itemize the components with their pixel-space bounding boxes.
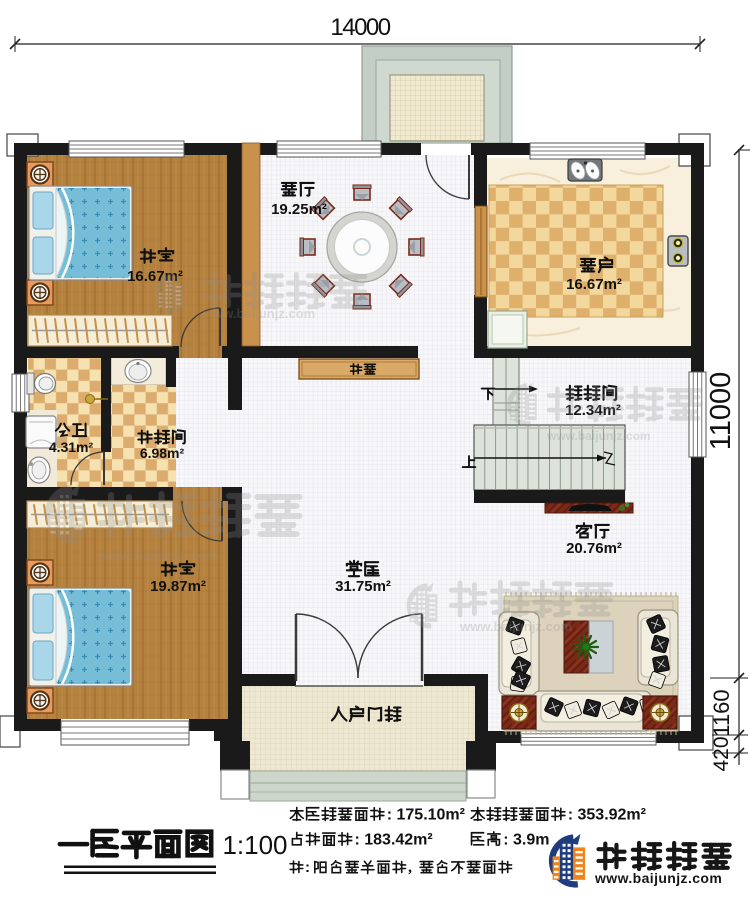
svg-text:16.67m²: 16.67m²: [127, 268, 183, 285]
svg-text:: 183.42m²: : 183.42m²: [354, 832, 432, 849]
svg-text:: 175.10m²: : 175.10m²: [387, 807, 465, 824]
svg-text:20.76m²: 20.76m²: [566, 540, 622, 557]
svg-text:www.baijunjz.com: www.baijunjz.com: [594, 870, 722, 886]
svg-text:www.baijunjz.com: www.baijunjz.com: [97, 547, 219, 563]
svg-text:: 3.9m: : 3.9m: [503, 832, 549, 849]
svg-text:19.87m²: 19.87m²: [150, 578, 206, 595]
svg-text:31.75m²: 31.75m²: [335, 578, 391, 595]
svg-text::: :: [305, 859, 310, 876]
svg-text:www.baijunjz.com: www.baijunjz.com: [546, 429, 651, 443]
svg-text:6.98m²: 6.98m²: [140, 445, 185, 461]
svg-text:14000: 14000: [330, 14, 390, 41]
svg-text:,: ,: [408, 859, 412, 876]
svg-text:420: 420: [710, 736, 733, 771]
svg-text:: 353.92m²: : 353.92m²: [568, 807, 646, 824]
svg-text:1:100: 1:100: [222, 830, 287, 860]
svg-text:19.25m²: 19.25m²: [271, 201, 327, 218]
svg-text:16.67m²: 16.67m²: [566, 276, 622, 293]
svg-text:www.baijunjz.com: www.baijunjz.com: [202, 306, 315, 321]
svg-text:1160: 1160: [709, 689, 734, 736]
svg-text:11000: 11000: [705, 372, 737, 451]
svg-text:4.31m²: 4.31m²: [49, 439, 94, 455]
svg-text:www.baijunjz.com: www.baijunjz.com: [459, 619, 572, 634]
